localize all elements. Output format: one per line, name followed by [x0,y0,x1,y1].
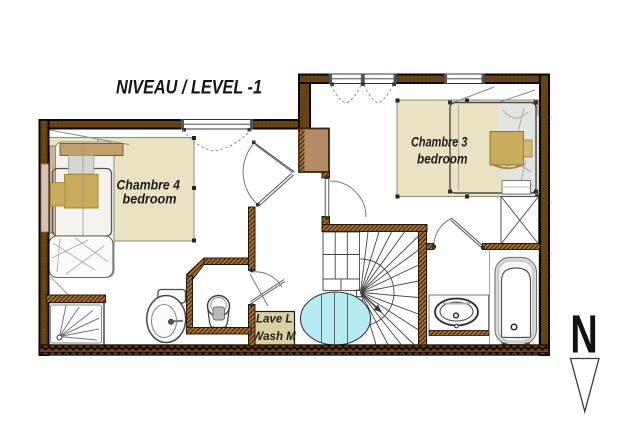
svg-text:Chambre 4: Chambre 4 [117,177,181,193]
svg-text:bedroom: bedroom [417,152,468,167]
svg-text:NIVEAU / LEVEL -1: NIVEAU / LEVEL -1 [116,77,262,99]
svg-text:Chambre 3: Chambre 3 [411,134,468,150]
svg-text:Lave L: Lave L [256,314,292,326]
svg-text:bedroom: bedroom [123,192,177,207]
svg-text:N: N [570,304,597,364]
svg-text:Wash M: Wash M [253,331,297,343]
